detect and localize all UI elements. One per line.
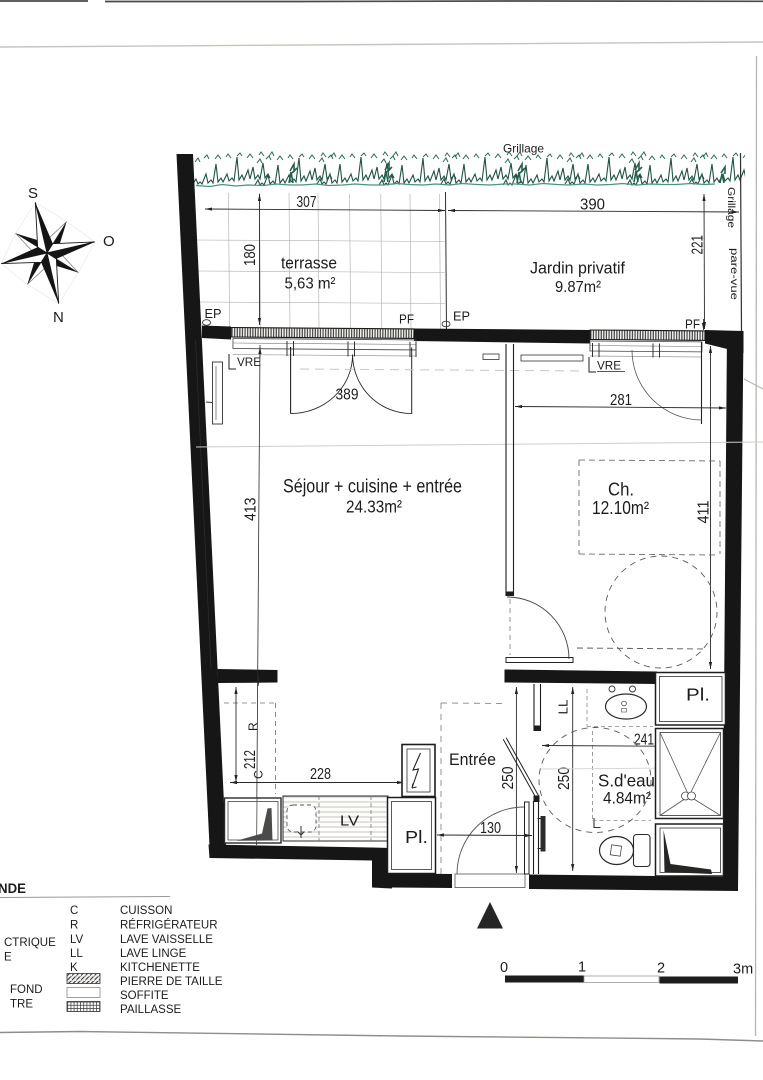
svg-text:Ch.: Ch. — [608, 479, 634, 500]
svg-text:0: 0 — [500, 960, 508, 976]
svg-text:Séjour + cuisine + entrée: Séjour + cuisine + entrée — [283, 477, 462, 498]
svg-text:250: 250 — [500, 766, 517, 789]
svg-text:TRE: TRE — [10, 999, 33, 1011]
svg-text:R: R — [70, 920, 78, 932]
svg-text:RÉFRIGÉRATEUR: RÉFRIGÉRATEUR — [120, 919, 218, 932]
svg-text:S: S — [28, 185, 38, 202]
svg-text:K: K — [70, 962, 78, 974]
svg-text:389: 389 — [336, 387, 359, 404]
svg-text:180: 180 — [242, 244, 259, 266]
svg-text:413: 413 — [243, 498, 260, 522]
svg-text:24.33m²: 24.33m² — [346, 497, 402, 517]
svg-text:9.87m²: 9.87m² — [555, 279, 602, 296]
svg-text:12.10m²: 12.10m² — [592, 498, 649, 518]
svg-text:LV: LV — [340, 814, 359, 830]
svg-text:VRE: VRE — [237, 355, 261, 369]
svg-text:C: C — [70, 905, 78, 917]
svg-text:terrasse: terrasse — [281, 254, 337, 273]
svg-text:CUISSON: CUISSON — [120, 905, 172, 917]
svg-text:KITCHENETTE: KITCHENETTE — [120, 962, 200, 974]
svg-text:LL: LL — [556, 700, 571, 715]
svg-text:1: 1 — [578, 960, 586, 976]
svg-text:CTRIQUE: CTRIQUE — [4, 937, 56, 949]
svg-text:N: N — [53, 309, 64, 326]
svg-text:307: 307 — [297, 194, 317, 211]
svg-text:LV: LV — [70, 934, 84, 946]
svg-text:O: O — [103, 233, 115, 250]
svg-text:E: E — [4, 952, 12, 964]
svg-text:390: 390 — [580, 197, 605, 214]
svg-text:250: 250 — [556, 767, 573, 790]
svg-text:EP: EP — [205, 306, 222, 321]
svg-text:LAVE VAISSELLE: LAVE VAISSELLE — [120, 934, 213, 946]
svg-text:FOND: FOND — [10, 984, 43, 996]
svg-text:C: C — [252, 770, 266, 779]
svg-text:228: 228 — [310, 766, 331, 783]
svg-text:212: 212 — [242, 750, 259, 769]
svg-text:221: 221 — [690, 235, 707, 255]
svg-text:PIERRE DE TAILLE: PIERRE DE TAILLE — [120, 976, 223, 988]
svg-text:3m: 3m — [733, 962, 753, 978]
svg-text:PAILLASSE: PAILLASSE — [120, 1004, 181, 1016]
svg-text:Jardin privatif: Jardin privatif — [530, 259, 625, 278]
svg-text:Pl.: Pl. — [405, 827, 428, 847]
svg-text:411: 411 — [696, 501, 713, 524]
svg-text:241: 241 — [634, 732, 654, 749]
svg-text:5,63 m²: 5,63 m² — [285, 276, 337, 293]
svg-text:PF: PF — [685, 317, 700, 332]
svg-text:Pl.: Pl. — [686, 685, 710, 705]
svg-text:281: 281 — [610, 392, 632, 409]
svg-text:Grillage: Grillage — [725, 187, 737, 228]
svg-text:R: R — [246, 722, 260, 731]
svg-text:EP: EP — [453, 309, 470, 324]
svg-text:NDE: NDE — [0, 881, 26, 896]
svg-text:2: 2 — [657, 961, 665, 977]
svg-text:VRE: VRE — [597, 359, 621, 373]
svg-text:S.d'eau: S.d'eau — [598, 771, 655, 791]
svg-text:Grillage: Grillage — [503, 142, 544, 156]
svg-text:pare-vue: pare-vue — [728, 248, 740, 300]
svg-text:SOFFITE: SOFFITE — [120, 990, 169, 1002]
svg-text:130: 130 — [480, 820, 501, 837]
svg-text:LAVE LINGE: LAVE LINGE — [120, 948, 187, 960]
svg-text:PF: PF — [399, 312, 414, 327]
svg-text:Entrée: Entrée — [449, 750, 496, 769]
svg-text:LL: LL — [70, 948, 83, 960]
